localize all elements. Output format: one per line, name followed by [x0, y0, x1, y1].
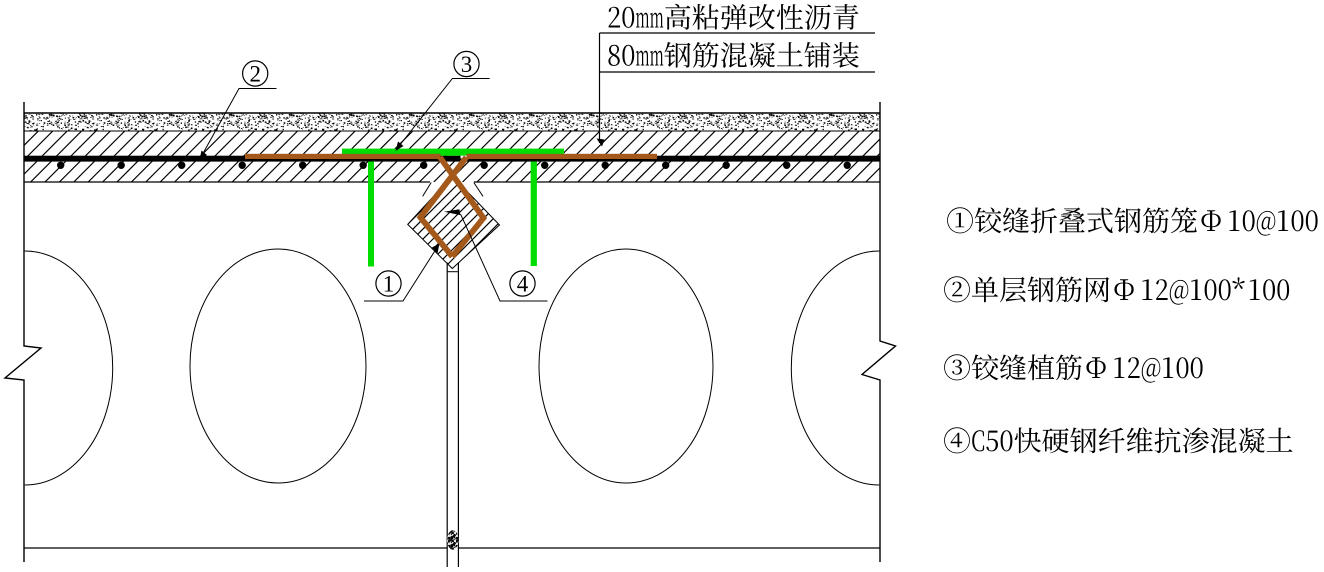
svg-text:1: 1	[383, 271, 395, 296]
svg-text:3: 3	[461, 52, 473, 77]
svg-text:4: 4	[517, 271, 529, 296]
svg-text:2: 2	[249, 61, 261, 86]
